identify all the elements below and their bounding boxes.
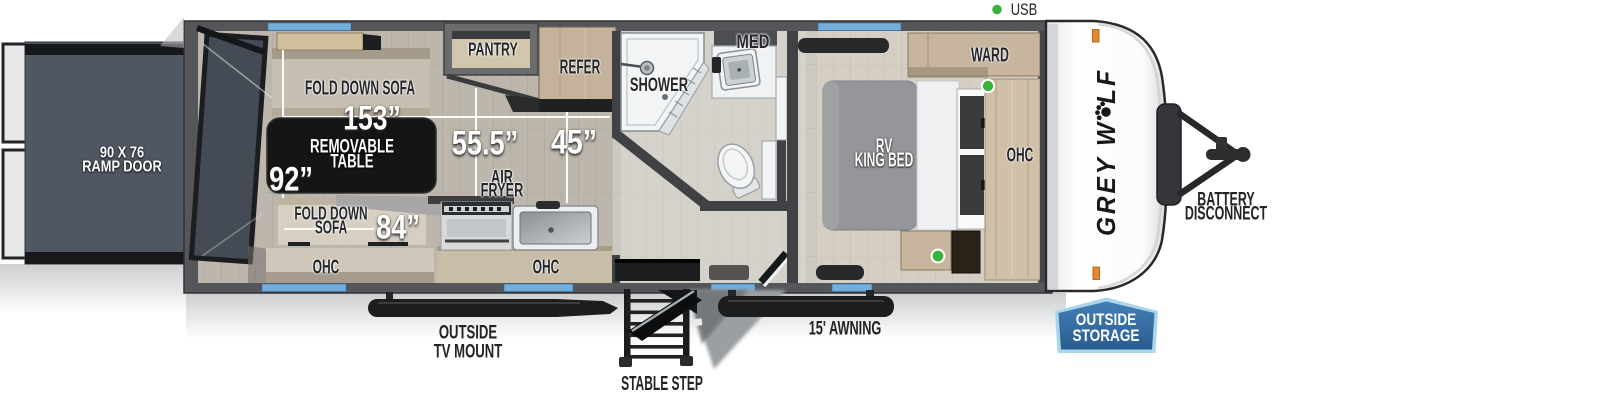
svg-text:LF: LF bbox=[1091, 68, 1121, 104]
svg-text:GREY W: GREY W bbox=[1091, 120, 1121, 236]
